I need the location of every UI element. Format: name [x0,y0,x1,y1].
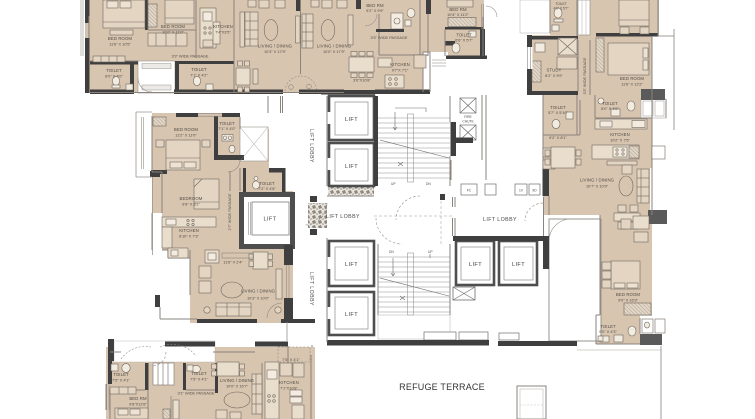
svg-text:3'3" WIDE PASSAGE: 3'3" WIDE PASSAGE [582,57,587,94]
svg-text:7'5" X 4'1": 7'5" X 4'1" [190,377,208,382]
svg-text:9'8"X12'8": 9'8"X12'8" [129,402,147,407]
svg-text:KITCHEN: KITCHEN [390,62,410,67]
svg-text:UP: UP [428,250,433,254]
svg-text:8'10" X 7'3": 8'10" X 7'3" [179,234,199,239]
svg-text:BED RM: BED RM [129,396,147,401]
svg-text:3'3" WIDE PASSAGE: 3'3" WIDE PASSAGE [370,35,407,40]
svg-text:8'2" X 9'9": 8'2" X 9'9" [545,73,563,78]
svg-text:LIFT: LIFT [264,217,277,223]
svg-text:7'5" X 4'1": 7'5" X 4'1" [282,357,300,362]
svg-text:LIFT: LIFT [345,164,358,170]
svg-text:5'7" X 5'10": 5'7" X 5'10" [548,110,568,115]
svg-text:9'8" X 8'2": 9'8" X 8'2" [182,202,200,207]
svg-text:TOILET: TOILET [191,371,207,376]
svg-text:9'2" X 9'9": 9'2" X 9'9" [366,8,384,13]
svg-text:7'1" X 4'0": 7'1" X 4'0" [218,126,236,131]
svg-text:FIRE: FIRE [464,115,472,119]
svg-text:BED ROOM: BED ROOM [174,127,199,132]
svg-text:9'0" X 4'3": 9'0" X 4'3" [599,329,617,334]
svg-text:3'6"X10'8": 3'6"X10'8" [353,78,371,83]
svg-text:KITCHEN: KITCHEN [610,132,630,137]
svg-text:11'6" X 10'5": 11'6" X 10'5" [109,42,131,47]
svg-text:TOILET: TOILET [106,68,122,73]
svg-text:LIFT: LIFT [512,262,525,268]
svg-text:TOILET: TOILET [113,372,129,377]
svg-text:10'3" X 17'9": 10'3" X 17'9" [264,49,287,54]
svg-text:8'0" X 4'0": 8'0" X 4'0" [601,106,619,111]
svg-text:TOILET: TOILET [191,67,207,72]
svg-text:LIVING / DINING: LIVING / DINING [241,289,276,294]
svg-text:DN: DN [389,250,394,254]
svg-text:KITCHEN: KITCHEN [279,380,299,385]
svg-text:10'4" X 11'2": 10'4" X 11'2" [447,12,469,17]
svg-text:LIFT: LIFT [345,117,358,123]
svg-text:3'1" WIDE PASSAGE: 3'1" WIDE PASSAGE [177,391,214,396]
svg-text:BED ROOM: BED ROOM [620,76,645,81]
svg-text:UP: UP [391,182,396,186]
svg-text:STUDY: STUDY [546,68,561,73]
svg-text:BED ROOM: BED ROOM [161,24,186,29]
svg-text:11'6" X 2'4": 11'6" X 2'4" [223,260,243,265]
svg-text:FC: FC [467,189,472,193]
svg-text:7'1"X10'8": 7'1"X10'8" [280,386,298,391]
svg-text:10'0" X 17'9": 10'0" X 17'9" [323,49,346,54]
svg-text:BED ROOM: BED ROOM [616,292,641,297]
svg-text:10'2" X 7'5": 10'2" X 7'5" [610,138,630,143]
svg-text:KITCHEN: KITCHEN [213,24,233,29]
svg-text:6'6" X 5'7": 6'6" X 5'7" [455,38,473,43]
svg-text:7'4"X3'5": 7'4"X3'5" [215,30,231,35]
svg-text:LIFT LOBBY: LIFT LOBBY [326,214,360,220]
svg-text:4'0" X 5'7": 4'0" X 5'7" [554,7,570,11]
svg-text:REFUGE TERRACE: REFUGE TERRACE [399,382,485,392]
svg-text:LIVING / DINING: LIVING / DINING [580,178,615,183]
svg-text:11'6" X 12'2": 11'6" X 12'2" [621,82,643,87]
svg-text:LIFT LOBBY: LIFT LOBBY [483,217,517,223]
svg-text:BEDROOM: BEDROOM [180,196,203,201]
svg-text:7'1" X 4'2": 7'1" X 4'2" [190,73,208,78]
svg-text:9'7"X 7'1": 9'7"X 7'1" [392,68,409,73]
svg-text:KITCHEN: KITCHEN [179,228,199,233]
svg-text:LIFT: LIFT [469,262,482,268]
svg-text:7'2" X 4'6": 7'2" X 4'6" [258,186,276,191]
svg-text:LIFT LOBBY: LIFT LOBBY [308,272,314,306]
svg-text:2'7" WIDE PASSAGE: 2'7" WIDE PASSAGE [227,193,232,230]
svg-text:BED ROOM: BED ROOM [108,36,133,41]
svg-text:LIFT: LIFT [345,262,358,268]
svg-text:LIVING / DINING: LIVING / DINING [317,44,352,49]
svg-text:CHUTE: CHUTE [462,120,474,124]
svg-text:10'3" X 10'0": 10'3" X 10'0" [247,296,270,301]
svg-text:10'7" X 10'9": 10'7" X 10'9" [586,184,609,189]
svg-text:7'5" X 4'1": 7'5" X 4'1" [112,378,130,383]
svg-text:10'0" X 15'7": 10'0" X 15'7" [226,384,249,389]
svg-text:10'0" X 11'0": 10'0" X 11'0" [162,30,184,35]
svg-text:8'0" X 4'0": 8'0" X 4'0" [105,74,123,79]
svg-text:9'2" X 8'1": 9'2" X 8'1" [549,135,567,140]
svg-text:LIVING / DINING: LIVING / DINING [220,378,255,383]
svg-text:9'0" X 16'3": 9'0" X 16'3" [618,298,638,303]
svg-text:DN: DN [426,182,431,186]
svg-text:11'2" X 11'0": 11'2" X 11'0" [175,133,197,138]
svg-text:LIVING / DINING: LIVING / DINING [258,44,293,49]
svg-text:TOILET: TOILET [555,2,566,6]
svg-text:LIFT LOBBY: LIFT LOBBY [308,129,314,163]
svg-text:3'3" WIDE PASSAGE: 3'3" WIDE PASSAGE [171,54,208,59]
svg-text:9D: 9D [532,189,537,193]
svg-text:LIFT: LIFT [345,312,358,318]
